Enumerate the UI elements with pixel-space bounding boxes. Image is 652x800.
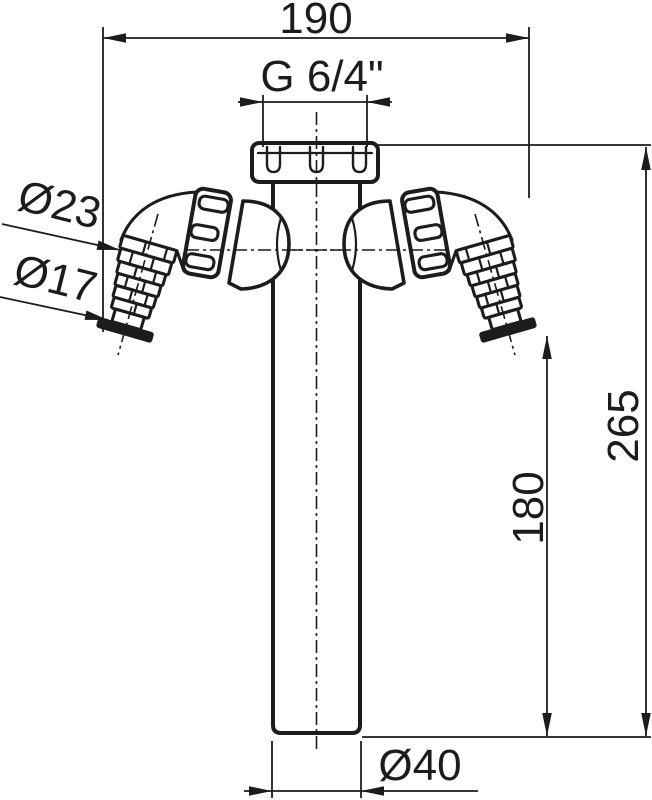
coupling-nut <box>252 143 378 182</box>
thread-size-label: G 6/4" <box>260 52 383 101</box>
arrow <box>506 33 529 43</box>
dim-265-label: 265 <box>599 389 648 462</box>
arrow <box>542 713 552 736</box>
dim-180: 180 <box>504 336 553 736</box>
arrow <box>249 786 272 796</box>
arrow <box>641 713 651 736</box>
arrow <box>542 336 552 359</box>
technical-drawing-page: 190 G 6/4" 265 180 Ø40 Ø23 <box>0 0 652 800</box>
arrow <box>103 33 126 43</box>
dim-190-label: 190 <box>279 0 352 43</box>
label-dia17: Ø17 <box>0 245 109 325</box>
nut-outline <box>252 143 378 182</box>
arrow <box>97 241 121 255</box>
dia-40-label: Ø40 <box>378 741 461 790</box>
technical-drawing-canvas: 190 G 6/4" 265 180 Ø40 Ø23 <box>0 0 652 800</box>
dim-thread: G 6/4" <box>238 52 392 147</box>
dim-40: Ø40 <box>244 741 478 798</box>
dim-180-label: 180 <box>504 471 553 544</box>
arrow <box>641 147 651 170</box>
